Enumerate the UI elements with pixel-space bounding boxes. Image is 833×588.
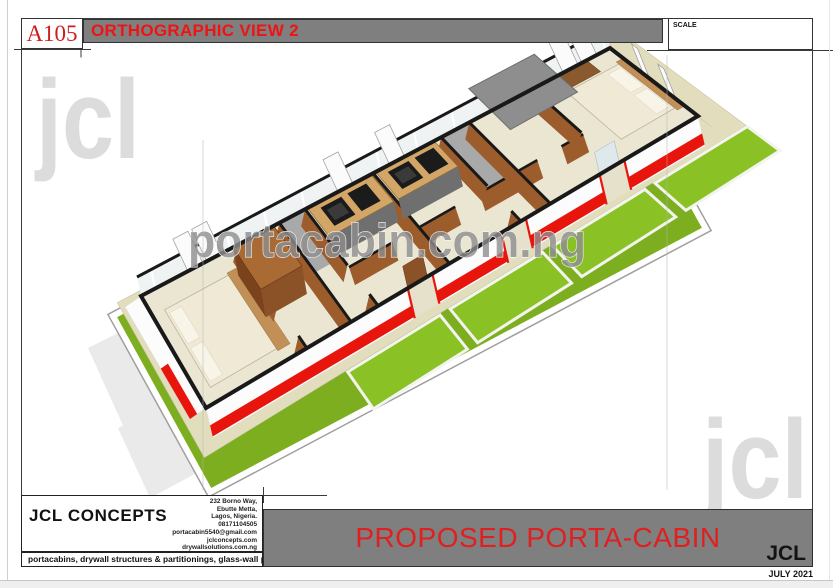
title-block-company: JCL CONCEPTS 232 Borno Way, Ebutte Metta… bbox=[21, 495, 263, 552]
project-title: PROPOSED PORTA-CABIN bbox=[264, 510, 812, 566]
address-line: 232 Borno Way, bbox=[107, 498, 257, 506]
view-title: ORTHOGRAPHIC VIEW 2 bbox=[91, 21, 299, 40]
page-edge-left bbox=[7, 0, 8, 581]
project-title-panel: PROPOSED PORTA-CABIN JCL bbox=[263, 509, 813, 567]
view-title-bar: ORTHOGRAPHIC VIEW 2 bbox=[83, 19, 663, 43]
drawing-sheet: { "sheet": { "drawing_number": "A105", "… bbox=[0, 0, 833, 588]
company-tagline-bar: portacabins, drywall structures & partit… bbox=[21, 552, 263, 567]
phone-number: 08171104505 bbox=[107, 521, 257, 529]
company-address: 232 Borno Way, Ebutte Metta, Lagos, Nige… bbox=[107, 498, 257, 552]
website: drywallsolutions.com.ng bbox=[107, 544, 257, 552]
page-margin-bottom bbox=[0, 581, 833, 588]
drawing-number: A105 bbox=[26, 21, 77, 46]
page-edge-right bbox=[829, 0, 830, 581]
jcl-logo: JCL bbox=[766, 542, 806, 566]
address-line: Ebutte Metta, bbox=[107, 506, 257, 514]
email-address: portacabin5540@gmail.com bbox=[107, 529, 257, 537]
drawing-number-box: A105 bbox=[21, 18, 83, 49]
sheet-border-frame bbox=[21, 18, 813, 567]
website: jclconcepts.com bbox=[107, 537, 257, 545]
scale-box: SCALE bbox=[668, 18, 813, 50]
sheet-date: JULY 2021 bbox=[735, 569, 813, 579]
scale-label: SCALE bbox=[673, 22, 697, 29]
address-line: Lagos, Nigeria. bbox=[107, 513, 257, 521]
